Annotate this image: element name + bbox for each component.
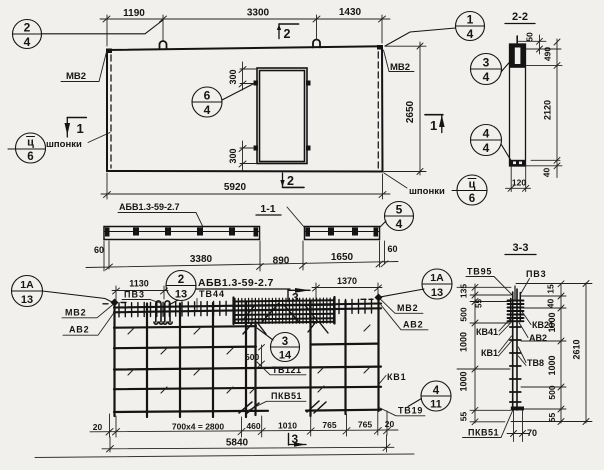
svg-text:120: 120 — [512, 178, 526, 188]
svg-text:6: 6 — [27, 151, 33, 163]
svg-text:1130: 1130 — [129, 279, 149, 289]
svg-text:4: 4 — [483, 70, 490, 84]
svg-text:ТВ44: ТВ44 — [199, 289, 225, 299]
svg-text:5840: 5840 — [226, 438, 249, 449]
svg-text:АВ2: АВ2 — [69, 325, 89, 335]
svg-text:4: 4 — [396, 217, 403, 231]
svg-text:60: 60 — [387, 244, 397, 254]
svg-text:1010: 1010 — [278, 421, 297, 431]
svg-text:40: 40 — [542, 168, 552, 178]
svg-text:4: 4 — [483, 127, 490, 141]
svg-text:3: 3 — [292, 291, 299, 305]
svg-text:1А: 1А — [20, 279, 34, 291]
svg-text:АВ2: АВ2 — [403, 320, 423, 330]
svg-text:4: 4 — [204, 103, 211, 117]
svg-text:50: 50 — [525, 32, 535, 42]
svg-text:КВ41: КВ41 — [476, 327, 498, 337]
svg-text:ТВ19: ТВ19 — [398, 406, 423, 416]
svg-text:2120: 2120 — [543, 100, 553, 120]
svg-text:55: 55 — [547, 413, 557, 423]
svg-text:МВ2: МВ2 — [397, 303, 418, 313]
svg-text:20: 20 — [93, 422, 103, 432]
svg-text:ТВ121: ТВ121 — [272, 365, 302, 375]
svg-text:55: 55 — [459, 412, 469, 422]
svg-text:2: 2 — [284, 27, 291, 41]
svg-text:3: 3 — [282, 336, 288, 348]
svg-text:3: 3 — [483, 56, 490, 70]
svg-text:МВ2: МВ2 — [66, 71, 86, 82]
svg-text:13: 13 — [175, 289, 187, 301]
svg-text:КВ1: КВ1 — [481, 348, 498, 358]
svg-text:1000: 1000 — [459, 371, 469, 391]
svg-text:ПКВ51: ПКВ51 — [271, 391, 302, 401]
svg-text:2: 2 — [287, 174, 294, 188]
svg-text:МВ2: МВ2 — [65, 308, 86, 318]
svg-text:55: 55 — [475, 299, 484, 308]
svg-text:1190: 1190 — [123, 8, 145, 19]
svg-text:4: 4 — [483, 141, 490, 155]
svg-text:шпонки: шпонки — [46, 139, 82, 150]
svg-text:40: 40 — [546, 299, 556, 309]
svg-text:шпонки: шпонки — [409, 186, 445, 197]
svg-text:1650: 1650 — [331, 252, 354, 263]
svg-text:700х4 = 2800: 700х4 = 2800 — [172, 422, 225, 432]
svg-text:765: 765 — [322, 420, 336, 430]
svg-text:60: 60 — [94, 245, 104, 255]
svg-text:500: 500 — [245, 352, 259, 362]
svg-text:1А: 1А — [430, 272, 444, 284]
svg-text:300: 300 — [228, 69, 238, 84]
svg-text:1370: 1370 — [337, 276, 357, 286]
svg-text:1430: 1430 — [339, 7, 362, 18]
svg-text:500: 500 — [459, 307, 469, 321]
svg-text:2: 2 — [24, 21, 31, 35]
svg-text:2650: 2650 — [405, 100, 416, 123]
svg-text:ц: ц — [27, 137, 34, 149]
svg-text:5920: 5920 — [224, 182, 247, 193]
svg-text:ц: ц — [469, 179, 476, 191]
svg-text:765: 765 — [358, 420, 372, 430]
svg-text:ТВ95: ТВ95 — [467, 267, 492, 277]
svg-text:5: 5 — [396, 203, 403, 217]
svg-text:3: 3 — [292, 432, 299, 446]
svg-text:АБВ1.3-59-2.7: АБВ1.3-59-2.7 — [198, 277, 274, 289]
svg-text:6: 6 — [469, 193, 475, 205]
svg-text:500: 500 — [547, 385, 557, 399]
svg-text:3-3: 3-3 — [513, 242, 529, 254]
svg-text:490: 490 — [543, 47, 553, 61]
svg-text:20: 20 — [385, 419, 395, 429]
svg-text:15: 15 — [546, 284, 556, 294]
svg-text:АВ2: АВ2 — [529, 333, 547, 343]
svg-text:КВ21: КВ21 — [532, 320, 554, 330]
svg-text:ПВ3: ПВ3 — [526, 269, 546, 279]
svg-text:11: 11 — [430, 399, 442, 411]
svg-text:2610: 2610 — [572, 339, 582, 359]
svg-text:АБВ1.3-59-2.7: АБВ1.3-59-2.7 — [119, 202, 180, 212]
svg-text:13: 13 — [431, 287, 443, 299]
svg-text:135: 135 — [459, 284, 469, 298]
svg-text:1000: 1000 — [547, 355, 557, 375]
svg-text:13: 13 — [21, 294, 33, 306]
svg-text:1: 1 — [430, 118, 437, 133]
svg-text:КВ1: КВ1 — [387, 372, 406, 382]
svg-text:2: 2 — [178, 274, 184, 286]
svg-text:4: 4 — [433, 385, 440, 397]
svg-text:3380: 3380 — [190, 254, 213, 265]
svg-text:300: 300 — [228, 148, 238, 163]
svg-text:2-2: 2-2 — [512, 11, 528, 23]
svg-text:6: 6 — [204, 89, 211, 103]
svg-text:460: 460 — [246, 421, 260, 431]
svg-text:4: 4 — [24, 35, 31, 49]
svg-text:1-1: 1-1 — [260, 203, 275, 215]
svg-text:3300: 3300 — [247, 8, 270, 19]
svg-text:70: 70 — [527, 428, 537, 438]
svg-text:ПКВ51: ПКВ51 — [468, 428, 499, 438]
svg-text:ТВ8: ТВ8 — [527, 358, 544, 368]
svg-text:14: 14 — [279, 350, 292, 362]
svg-text:1: 1 — [467, 13, 474, 27]
svg-text:1: 1 — [77, 121, 84, 136]
svg-text:ПВ3: ПВ3 — [124, 290, 145, 300]
svg-text:1000: 1000 — [459, 332, 469, 352]
svg-text:4: 4 — [467, 27, 474, 41]
svg-text:890: 890 — [273, 256, 290, 267]
